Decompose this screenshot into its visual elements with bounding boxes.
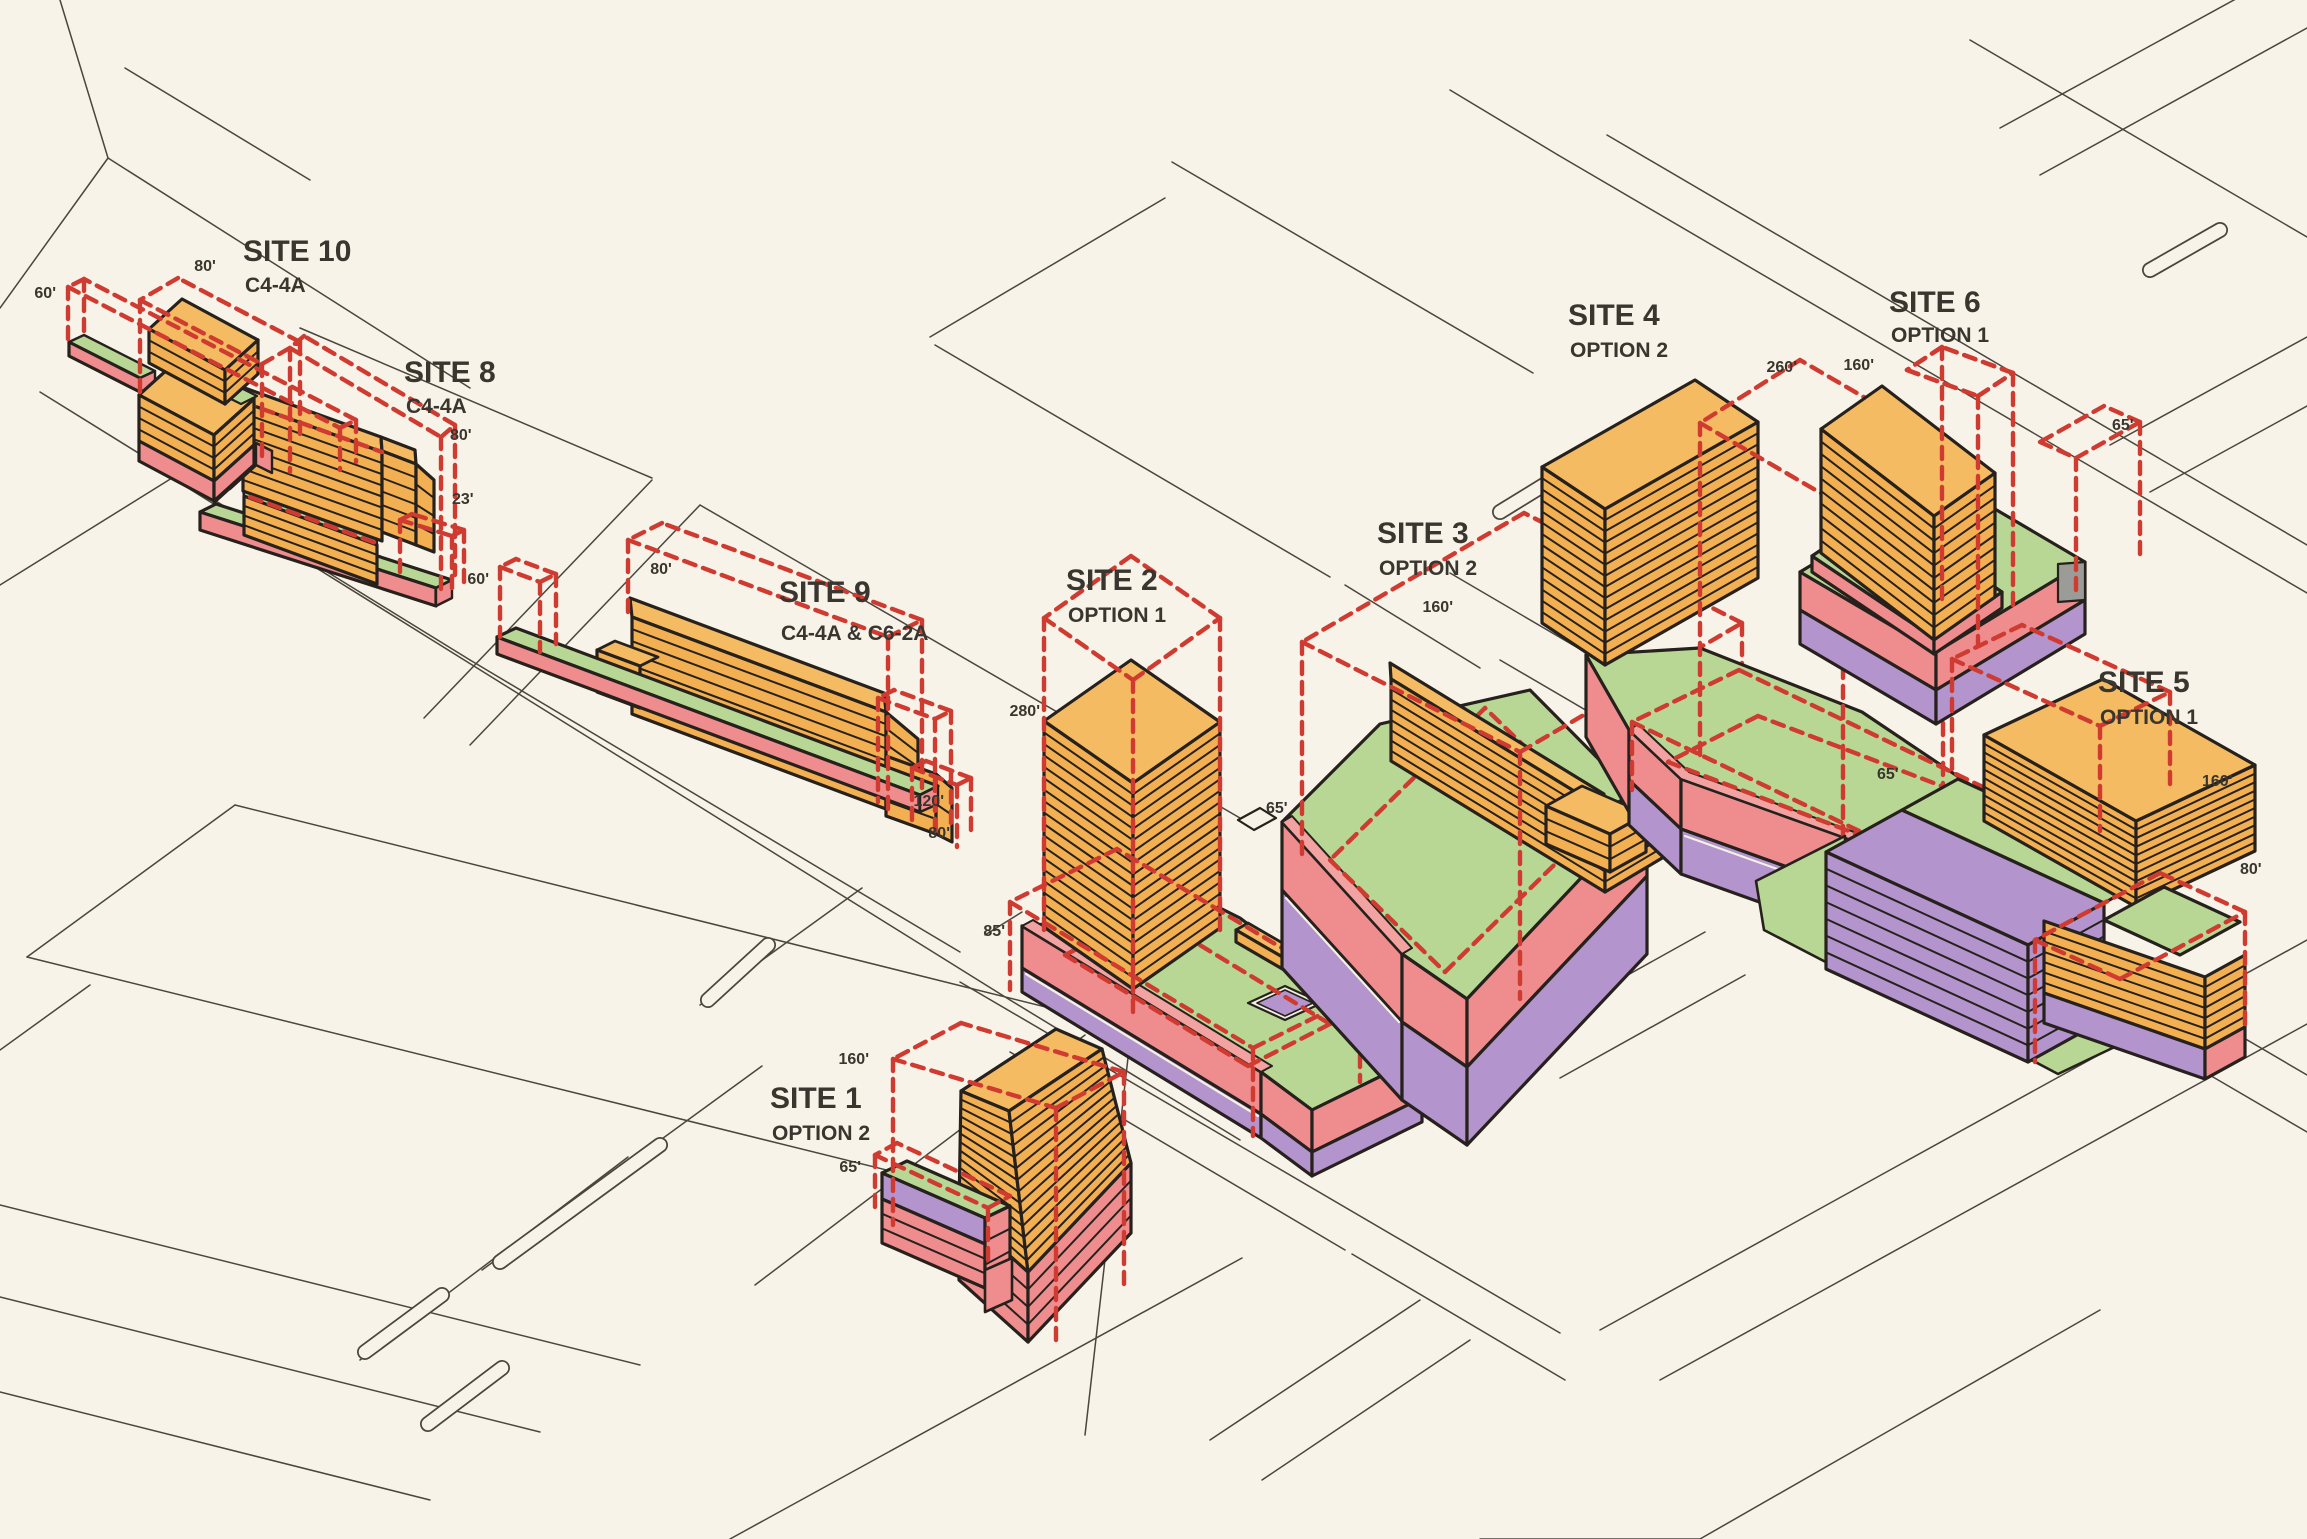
svg-text:280': 280' xyxy=(1010,703,1041,720)
svg-text:23': 23' xyxy=(452,491,474,508)
svg-text:260': 260' xyxy=(1767,359,1798,376)
svg-text:80': 80' xyxy=(650,561,672,578)
svg-text:OPTION 1: OPTION 1 xyxy=(1068,604,1166,627)
svg-text:160': 160' xyxy=(1844,357,1875,374)
svg-text:SITE 6: SITE 6 xyxy=(1889,286,1981,319)
svg-text:160': 160' xyxy=(2202,773,2233,790)
svg-text:160': 160' xyxy=(1423,599,1454,616)
svg-text:C4-4A & C6-2A: C4-4A & C6-2A xyxy=(781,622,928,645)
svg-text:SITE 10: SITE 10 xyxy=(243,235,351,268)
svg-text:85': 85' xyxy=(983,923,1005,940)
svg-text:SITE 1: SITE 1 xyxy=(770,1082,862,1115)
svg-text:60': 60' xyxy=(467,571,489,588)
svg-text:OPTION 2: OPTION 2 xyxy=(1570,339,1668,362)
svg-text:OPTION 1: OPTION 1 xyxy=(1891,324,1989,347)
svg-text:SITE 4: SITE 4 xyxy=(1568,299,1660,332)
svg-text:60': 60' xyxy=(34,285,56,302)
svg-text:80': 80' xyxy=(450,427,472,444)
svg-text:65': 65' xyxy=(839,1159,861,1176)
svg-text:80': 80' xyxy=(2240,861,2262,878)
svg-text:SITE 8: SITE 8 xyxy=(404,356,496,389)
svg-text:65': 65' xyxy=(1877,766,1899,783)
svg-text:OPTION 2: OPTION 2 xyxy=(1379,557,1477,580)
svg-text:C4-4A: C4-4A xyxy=(245,274,306,297)
svg-text:SITE 2: SITE 2 xyxy=(1066,564,1158,597)
svg-text:65': 65' xyxy=(2112,417,2134,434)
svg-text:SITE 3: SITE 3 xyxy=(1377,517,1469,550)
svg-text:65': 65' xyxy=(1266,800,1288,817)
svg-text:SITE 9: SITE 9 xyxy=(779,576,871,609)
svg-text:C4-4A: C4-4A xyxy=(406,395,467,418)
svg-text:OPTION 2: OPTION 2 xyxy=(772,1122,870,1145)
svg-text:SITE 5: SITE 5 xyxy=(2098,666,2190,699)
svg-text:120': 120' xyxy=(914,793,945,810)
svg-text:80': 80' xyxy=(194,258,216,275)
svg-text:80': 80' xyxy=(928,825,950,842)
svg-text:OPTION 1: OPTION 1 xyxy=(2100,706,2198,729)
svg-text:160': 160' xyxy=(839,1051,870,1068)
